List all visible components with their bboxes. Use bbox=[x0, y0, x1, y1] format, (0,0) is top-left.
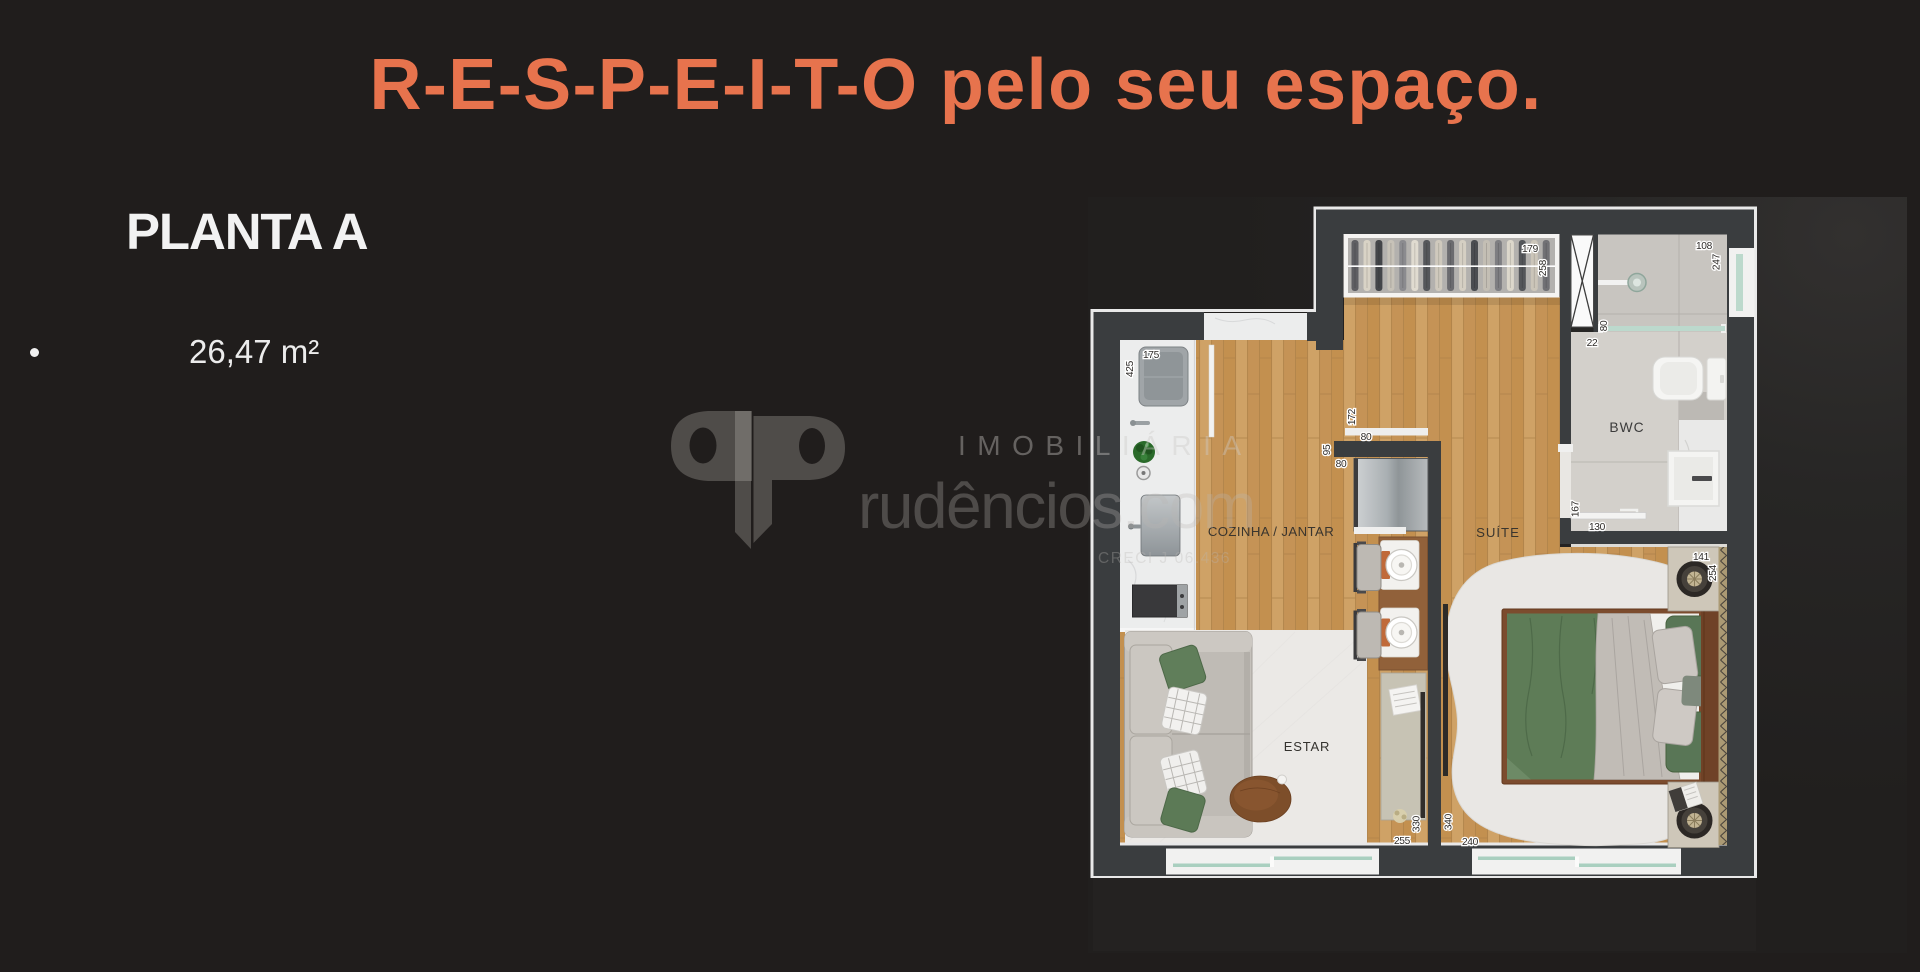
svg-text:IMOBILIÁRIA: IMOBILIÁRIA bbox=[958, 430, 1253, 461]
svg-text:rudêncios.com: rudêncios.com bbox=[858, 470, 1255, 542]
svg-text:CRECI J 06.436: CRECI J 06.436 bbox=[1098, 550, 1231, 567]
